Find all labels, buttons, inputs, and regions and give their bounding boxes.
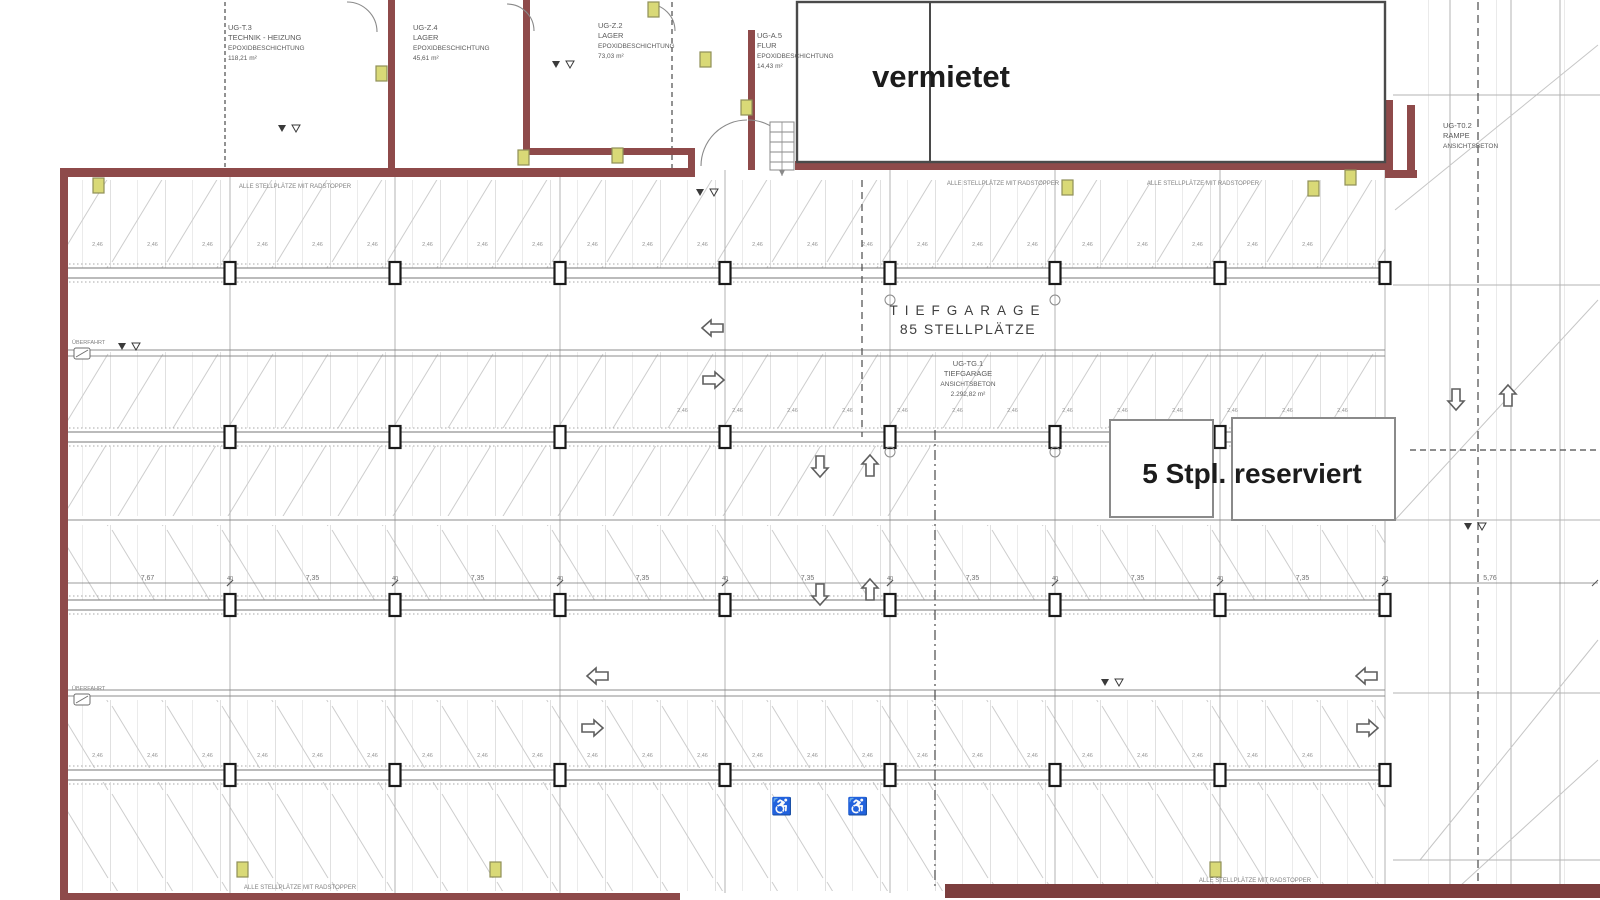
room-label-ug-tg1: TIEFGARAGE <box>944 369 992 378</box>
stall-width-value: 2,46 <box>842 408 853 414</box>
stall-width-value: 2,46 <box>367 753 378 759</box>
vent-shaft-symbol <box>376 66 387 81</box>
column <box>1050 426 1061 448</box>
room-label-ug-a5: 14,43 m² <box>757 63 783 70</box>
stall-width-value: 2,46 <box>1062 408 1073 414</box>
stall-width-value: 2,46 <box>752 753 763 759</box>
dimension-value: 7,35 <box>966 575 980 582</box>
column <box>390 594 401 616</box>
wheelchair-icon: ♿ <box>771 796 792 816</box>
stall-width-value: 2,46 <box>532 242 543 248</box>
stall-width-value: 2,46 <box>787 408 798 414</box>
stall-width-value: 2,46 <box>862 753 873 759</box>
stall-width-value: 2,46 <box>477 753 488 759</box>
vent-shaft-symbol <box>612 148 623 163</box>
column <box>1215 426 1226 448</box>
room-label-ug-z4: UG-Z.4 <box>413 23 438 32</box>
stall-width-value: 2,46 <box>422 242 433 248</box>
edge-note: ÜBERFAHRT <box>72 685 106 692</box>
radstopper-note: ALLE STELLPLÄTZE MIT RADSTOPPER <box>1199 877 1312 884</box>
room-label-ug-z4: EPOXIDBESCHICHTUNG <box>413 45 490 52</box>
column <box>225 594 236 616</box>
dimension-value: 7,67 <box>141 575 155 582</box>
column <box>885 426 896 448</box>
radstopper-note: ALLE STELLPLÄTZE MIT RADSTOPPER <box>239 183 352 190</box>
stall-width-value: 2,46 <box>917 242 928 248</box>
stall-width-value: 2,46 <box>1337 408 1348 414</box>
column <box>1050 594 1061 616</box>
room-label-ug-t3: TECHNIK - HEIZUNG <box>228 33 302 42</box>
vent-shaft-symbol <box>741 100 752 115</box>
stall-width-value: 2,46 <box>642 753 653 759</box>
stall-width-value: 2,46 <box>642 242 653 248</box>
column <box>225 426 236 448</box>
stall-width-value: 2,46 <box>312 753 323 759</box>
vent-shaft-symbol <box>518 150 529 165</box>
stall-width-value: 2,46 <box>422 753 433 759</box>
vent-shaft-symbol <box>648 2 659 17</box>
stall-width-value: 2,46 <box>257 753 268 759</box>
dimension-value: 7,35 <box>1296 575 1310 582</box>
stall-width-value: 2,46 <box>1007 408 1018 414</box>
dimension-value: 7,35 <box>1131 575 1145 582</box>
column <box>1215 262 1226 284</box>
column <box>885 764 896 786</box>
stall-width-value: 2,46 <box>732 408 743 414</box>
room-label-ug-z2: LAGER <box>598 31 624 40</box>
stall-width-value: 2,46 <box>677 408 688 414</box>
stall-width-value: 2,46 <box>1302 753 1313 759</box>
room-label-ug-a5: EPOXIDBESCHICHTUNG <box>757 53 834 60</box>
column <box>390 764 401 786</box>
garage-title-line2: 85 STELLPLÄTZE <box>900 321 1036 337</box>
stall-width-value: 2,46 <box>367 242 378 248</box>
column <box>1050 262 1061 284</box>
column <box>1380 262 1391 284</box>
dimension-value: 7,35 <box>801 575 815 582</box>
room-label-ug-a5: FLUR <box>757 41 777 50</box>
edge-note: ÜBERFAHRT <box>72 339 106 346</box>
vent-shaft-symbol <box>1210 862 1221 877</box>
garage-title-line1: TIEFGARAGE <box>889 303 1046 318</box>
reserved-label: 5 Stpl. reserviert <box>1142 458 1361 489</box>
column <box>390 262 401 284</box>
stall-width-value: 2,46 <box>147 753 158 759</box>
dimension-value: 7,35 <box>471 575 485 582</box>
stall-width-value: 2,46 <box>202 242 213 248</box>
vent-shaft-symbol <box>237 862 248 877</box>
vent-shaft-symbol <box>1308 181 1319 196</box>
room-label-ug-z4: 45,61 m² <box>413 55 439 62</box>
stall-width-value: 2,46 <box>862 242 873 248</box>
dimension-value: 7,35 <box>636 575 650 582</box>
room-label-ug-t02: ANSICHTSBETON <box>1443 143 1498 150</box>
room-label-ug-t3: EPOXIDBESCHICHTUNG <box>228 45 305 52</box>
radstopper-note: ALLE STELLPLÄTZE MIT RADSTOPPER <box>947 180 1060 187</box>
column <box>720 426 731 448</box>
stall-width-value: 2,46 <box>1192 753 1203 759</box>
stall-width-value: 2,46 <box>92 753 103 759</box>
stall-width-value: 2,46 <box>532 753 543 759</box>
stall-width-value: 2,46 <box>1172 408 1183 414</box>
stall-width-value: 2,46 <box>92 242 103 248</box>
stall-width-value: 2,46 <box>1082 242 1093 248</box>
vermietet-label: vermietet <box>872 59 1010 94</box>
stall-width-value: 2,46 <box>1192 242 1203 248</box>
stall-width-value: 2,46 <box>1302 242 1313 248</box>
room-label-ug-a5: UG-A.5 <box>757 31 782 40</box>
stall-width-value: 2,46 <box>917 753 928 759</box>
garage-floorplan: 7,67407,35407,35407,35407,35407,35407,35… <box>0 0 1600 900</box>
column <box>390 426 401 448</box>
room-label-ug-z2: 73,03 m² <box>598 53 624 60</box>
room-label-ug-z2: EPOXIDBESCHICHTUNG <box>598 43 675 50</box>
column <box>885 594 896 616</box>
stall-width-value: 2,46 <box>587 242 598 248</box>
stall-width-value: 2,46 <box>752 242 763 248</box>
column <box>720 262 731 284</box>
column <box>225 262 236 284</box>
vent-shaft-symbol <box>93 178 104 193</box>
stall-width-value: 2,46 <box>1117 408 1128 414</box>
stall-width-value: 2,46 <box>312 242 323 248</box>
stall-width-value: 2,46 <box>897 408 908 414</box>
stall-width-value: 2,46 <box>1247 242 1258 248</box>
stall-width-value: 2,46 <box>147 242 158 248</box>
column <box>720 764 731 786</box>
vent-shaft-symbol <box>490 862 501 877</box>
dimension-value: 7,35 <box>306 575 320 582</box>
stall-width-value: 2,46 <box>972 242 983 248</box>
vent-shaft-symbol <box>700 52 711 67</box>
reserved-area: 5 Stpl. reserviert <box>1110 418 1395 520</box>
column <box>555 764 566 786</box>
wheelchair-icon: ♿ <box>847 796 868 816</box>
stall-width-value: 2,46 <box>1027 242 1038 248</box>
column <box>1215 594 1226 616</box>
room-label-ug-t02: RAMPE <box>1443 131 1470 140</box>
stall-width-value: 2,46 <box>697 242 708 248</box>
stall-width-value: 2,46 <box>257 242 268 248</box>
column <box>1380 764 1391 786</box>
stall-width-value: 2,46 <box>1227 408 1238 414</box>
vent-shaft-symbol <box>1345 170 1356 185</box>
stall-width-value: 2,46 <box>1082 753 1093 759</box>
vermietet-area: vermietet <box>797 2 1385 162</box>
room-label-ug-tg1: ANSICHTSBETON <box>940 381 995 388</box>
column <box>225 764 236 786</box>
stall-width-value: 2,46 <box>1247 753 1258 759</box>
column <box>555 262 566 284</box>
column <box>1050 764 1061 786</box>
stall-width-value: 2,46 <box>952 408 963 414</box>
room-label-ug-z2: UG-Z.2 <box>598 21 623 30</box>
room-label-ug-z4: LAGER <box>413 33 439 42</box>
column <box>1215 764 1226 786</box>
room-label-ug-tg1: UG-TG.1 <box>953 359 983 368</box>
vent-shaft-symbol <box>1062 180 1073 195</box>
stall-width-value: 2,46 <box>477 242 488 248</box>
column <box>720 594 731 616</box>
stall-width-value: 2,46 <box>1282 408 1293 414</box>
column <box>555 426 566 448</box>
room-label-ug-t02: UG-T0.2 <box>1443 121 1472 130</box>
room-label-ug-t3: 118,21 m² <box>228 55 258 62</box>
stall-width-value: 2,46 <box>1027 753 1038 759</box>
stair-symbol <box>770 122 794 176</box>
column <box>555 594 566 616</box>
column <box>1380 594 1391 616</box>
room-label-ug-t3: UG-T.3 <box>228 23 252 32</box>
stall-width-value: 2,46 <box>972 753 983 759</box>
stall-width-value: 2,46 <box>1137 242 1148 248</box>
dimension-value: 5,76 <box>1483 575 1497 582</box>
radstopper-note: ALLE STELLPLÄTZE MIT RADSTOPPER <box>1147 180 1260 187</box>
column <box>885 262 896 284</box>
stall-width-value: 2,46 <box>1137 753 1148 759</box>
stall-width-value: 2,46 <box>807 753 818 759</box>
radstopper-note: ALLE STELLPLÄTZE MIT RADSTOPPER <box>244 884 357 891</box>
room-label-ug-tg1: 2.292,82 m² <box>951 391 987 398</box>
stall-width-value: 2,46 <box>202 753 213 759</box>
stall-width-value: 2,46 <box>807 242 818 248</box>
stall-width-value: 2,46 <box>587 753 598 759</box>
stall-width-value: 2,46 <box>697 753 708 759</box>
